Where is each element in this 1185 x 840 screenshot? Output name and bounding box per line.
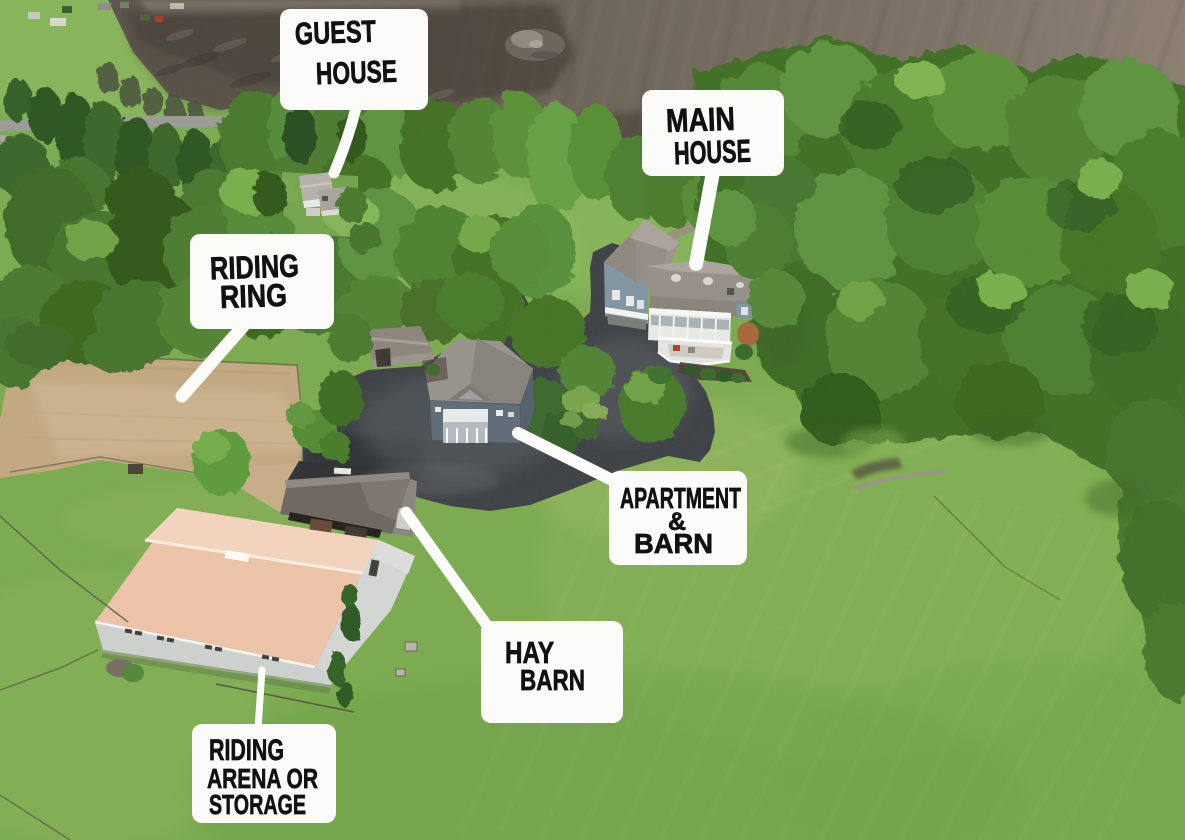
svg-text:BARN: BARN <box>520 665 585 697</box>
svg-text:BARN: BARN <box>634 528 713 559</box>
svg-text:STORAGE: STORAGE <box>209 789 306 820</box>
svg-text:HOUSE: HOUSE <box>315 54 397 92</box>
svg-text:HOUSE: HOUSE <box>673 133 751 172</box>
svg-text:GUEST: GUEST <box>294 14 376 52</box>
svg-text:RING: RING <box>219 277 287 315</box>
